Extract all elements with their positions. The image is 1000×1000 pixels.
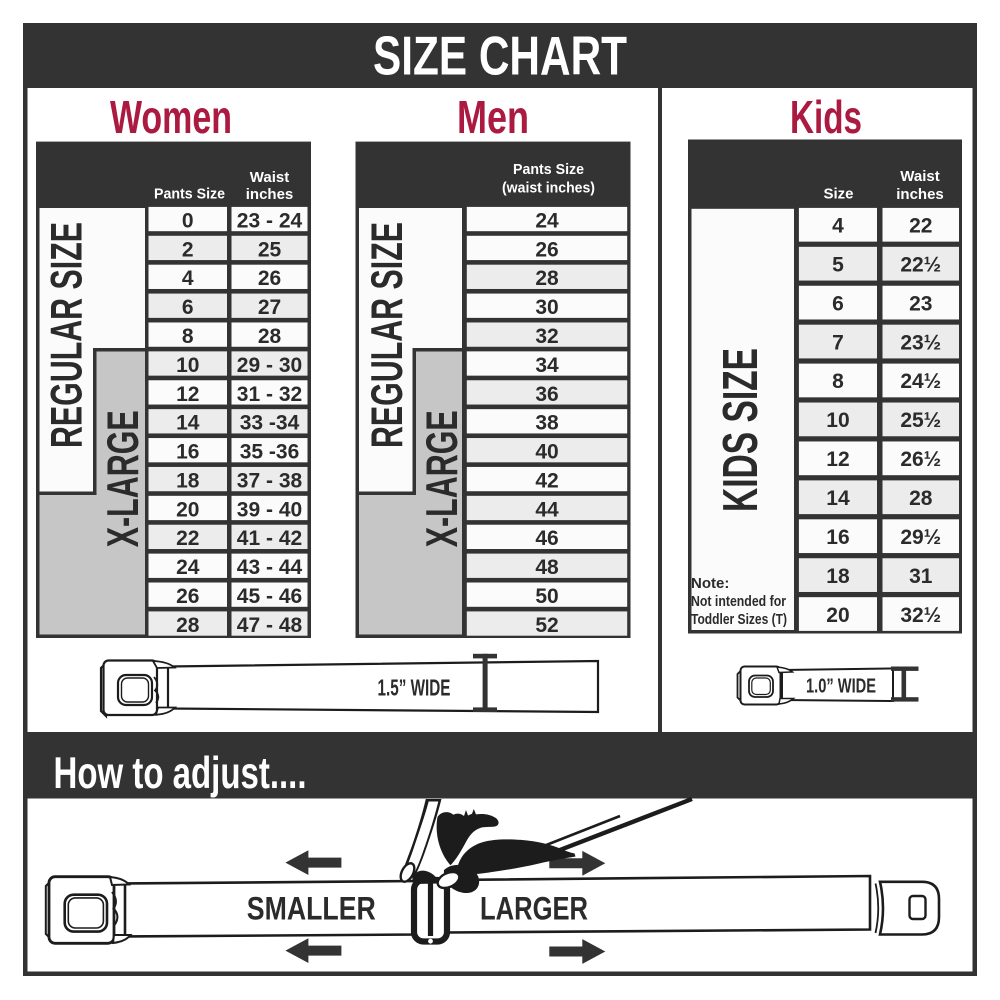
svg-text:16: 16 bbox=[176, 441, 199, 464]
svg-text:30: 30 bbox=[535, 296, 558, 319]
svg-text:22½: 22½ bbox=[900, 253, 941, 276]
svg-text:29½: 29½ bbox=[900, 526, 941, 549]
svg-text:47 - 48: 47 - 48 bbox=[237, 614, 303, 637]
svg-text:REGULAR SIZE: REGULAR SIZE bbox=[363, 222, 412, 448]
svg-text:48: 48 bbox=[535, 556, 559, 579]
svg-text:SIZE CHART: SIZE CHART bbox=[373, 25, 627, 87]
svg-text:20: 20 bbox=[176, 498, 199, 521]
svg-text:18: 18 bbox=[176, 469, 200, 492]
svg-text:43 - 44: 43 - 44 bbox=[237, 556, 303, 579]
svg-text:45 - 46: 45 - 46 bbox=[237, 585, 302, 608]
svg-text:31 - 32: 31 - 32 bbox=[237, 383, 302, 406]
svg-text:23: 23 bbox=[909, 292, 932, 315]
svg-text:How to adjust....: How to adjust.... bbox=[54, 749, 307, 798]
svg-text:52: 52 bbox=[535, 614, 558, 637]
svg-text:23½: 23½ bbox=[900, 331, 941, 354]
svg-text:41 - 42: 41 - 42 bbox=[237, 527, 302, 550]
svg-text:23 - 24: 23 - 24 bbox=[237, 209, 303, 232]
svg-text:24: 24 bbox=[535, 209, 559, 232]
svg-text:0: 0 bbox=[182, 209, 194, 232]
svg-text:LARGER: LARGER bbox=[480, 891, 588, 927]
svg-text:1.0” WIDE: 1.0” WIDE bbox=[806, 675, 876, 698]
svg-text:25: 25 bbox=[258, 238, 282, 261]
svg-text:37 - 38: 37 - 38 bbox=[237, 469, 303, 492]
svg-text:39 - 40: 39 - 40 bbox=[237, 498, 302, 521]
svg-text:42: 42 bbox=[535, 469, 558, 492]
svg-text:inches: inches bbox=[246, 186, 294, 203]
svg-text:32: 32 bbox=[535, 325, 558, 348]
svg-text:31: 31 bbox=[909, 565, 933, 588]
svg-text:26: 26 bbox=[258, 267, 281, 290]
svg-text:X-LARGE: X-LARGE bbox=[99, 410, 148, 547]
svg-text:33 -34: 33 -34 bbox=[240, 412, 300, 435]
svg-text:24½: 24½ bbox=[900, 370, 941, 393]
svg-text:REGULAR SIZE: REGULAR SIZE bbox=[43, 222, 92, 448]
svg-text:6: 6 bbox=[832, 292, 844, 315]
svg-text:(waist inches): (waist inches) bbox=[502, 180, 595, 197]
svg-text:8: 8 bbox=[182, 325, 194, 348]
svg-text:Waist: Waist bbox=[900, 168, 939, 185]
svg-text:26: 26 bbox=[176, 585, 199, 608]
svg-text:4: 4 bbox=[182, 267, 194, 290]
svg-text:32½: 32½ bbox=[900, 604, 941, 627]
svg-text:KIDS SIZE: KIDS SIZE bbox=[714, 348, 768, 512]
svg-text:Men: Men bbox=[457, 91, 529, 143]
svg-text:2: 2 bbox=[182, 238, 194, 261]
svg-text:4: 4 bbox=[832, 215, 844, 238]
svg-text:35 -36: 35 -36 bbox=[240, 441, 300, 464]
svg-text:28: 28 bbox=[909, 487, 933, 510]
svg-text:12: 12 bbox=[176, 383, 199, 406]
svg-text:12: 12 bbox=[826, 448, 849, 471]
svg-text:16: 16 bbox=[826, 526, 849, 549]
svg-text:Toddler Sizes (T): Toddler Sizes (T) bbox=[691, 611, 787, 628]
svg-text:50: 50 bbox=[535, 585, 558, 608]
svg-text:22: 22 bbox=[176, 527, 199, 550]
svg-text:28: 28 bbox=[176, 614, 200, 637]
svg-text:36: 36 bbox=[535, 383, 558, 406]
svg-text:18: 18 bbox=[826, 565, 850, 588]
svg-text:34: 34 bbox=[535, 354, 559, 377]
svg-text:20: 20 bbox=[826, 604, 849, 627]
svg-text:Kids: Kids bbox=[790, 91, 862, 143]
svg-text:inches: inches bbox=[896, 186, 944, 203]
svg-text:7: 7 bbox=[832, 331, 844, 354]
svg-text:38: 38 bbox=[535, 412, 559, 435]
svg-text:29 - 30: 29 - 30 bbox=[237, 354, 302, 377]
svg-text:24: 24 bbox=[176, 556, 200, 579]
svg-text:44: 44 bbox=[535, 498, 559, 521]
svg-text:26½: 26½ bbox=[900, 448, 941, 471]
svg-text:Pants Size: Pants Size bbox=[154, 186, 225, 203]
svg-text:14: 14 bbox=[826, 487, 850, 510]
svg-text:Pants Size: Pants Size bbox=[513, 161, 584, 178]
svg-text:Women: Women bbox=[110, 91, 232, 143]
svg-text:SMALLER: SMALLER bbox=[247, 891, 376, 927]
svg-text:Size: Size bbox=[823, 186, 853, 203]
svg-text:10: 10 bbox=[176, 354, 199, 377]
svg-text:25½: 25½ bbox=[900, 409, 941, 432]
svg-text:5: 5 bbox=[832, 253, 844, 276]
svg-text:46: 46 bbox=[535, 527, 558, 550]
svg-text:27: 27 bbox=[258, 296, 281, 319]
svg-text:6: 6 bbox=[182, 296, 194, 319]
svg-text:Not intended for: Not intended for bbox=[691, 593, 786, 610]
svg-text:40: 40 bbox=[535, 441, 558, 464]
svg-text:Note:: Note: bbox=[691, 575, 729, 592]
svg-text:26: 26 bbox=[535, 238, 558, 261]
svg-text:1.5” WIDE: 1.5” WIDE bbox=[378, 675, 451, 701]
svg-text:14: 14 bbox=[176, 412, 200, 435]
svg-text:Waist: Waist bbox=[250, 169, 289, 186]
svg-text:10: 10 bbox=[826, 409, 849, 432]
svg-text:22: 22 bbox=[909, 215, 932, 238]
svg-text:8: 8 bbox=[832, 370, 844, 393]
svg-text:28: 28 bbox=[258, 325, 282, 348]
svg-text:X-LARGE: X-LARGE bbox=[418, 410, 467, 547]
svg-text:28: 28 bbox=[535, 267, 559, 290]
